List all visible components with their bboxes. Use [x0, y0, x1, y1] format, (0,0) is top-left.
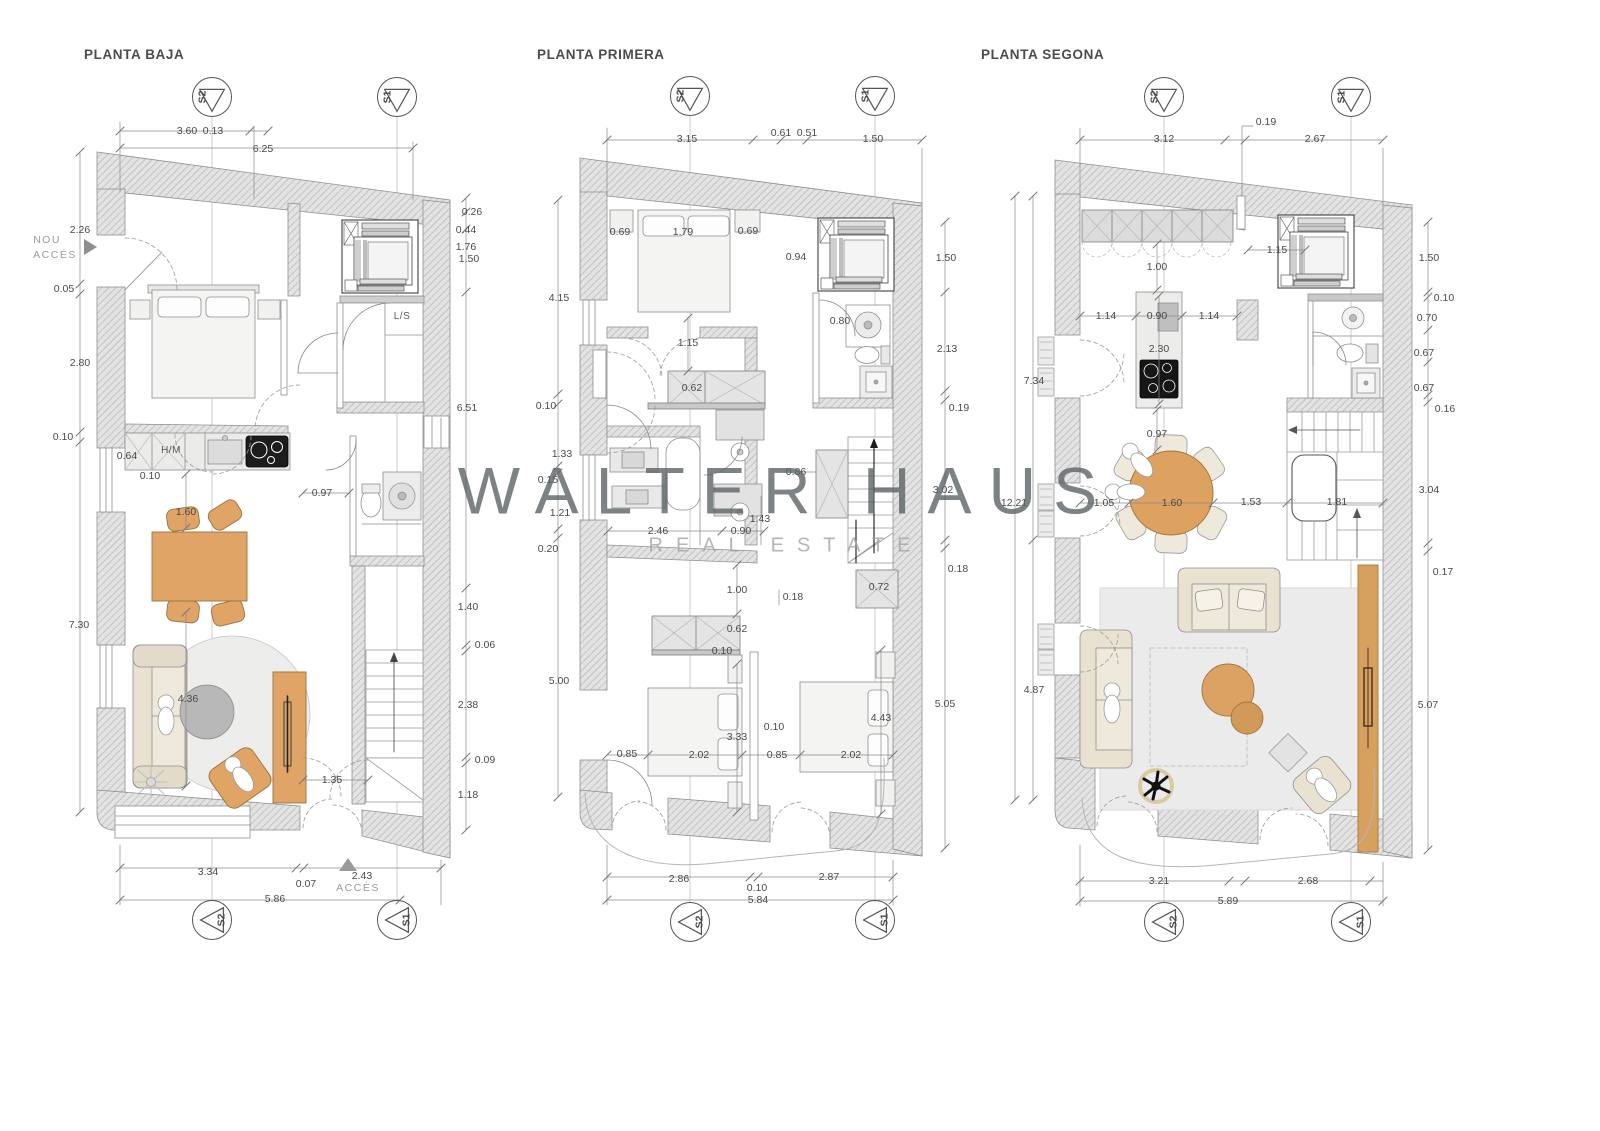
bathroom-fixtures	[1308, 294, 1383, 398]
dim-label: 7.34	[1024, 376, 1044, 387]
dim-label: 3.15	[677, 134, 697, 145]
dim-label: 0.10	[140, 471, 160, 482]
section-marker-label: S2	[674, 90, 686, 103]
dim-label: 2.02	[689, 750, 709, 761]
dim-label: 0.69	[610, 227, 630, 238]
dim-label: 0.05	[54, 284, 74, 295]
bed-icon	[648, 652, 895, 820]
dim-label: 1.18	[458, 790, 478, 801]
dim-label: 0.97	[312, 488, 332, 499]
section-marker-label: S1	[879, 914, 891, 927]
dim-label: 4.43	[871, 713, 891, 724]
dim-label: 0.62	[727, 624, 747, 635]
kitchen-counter	[125, 433, 290, 470]
dim-label: 5.05	[935, 699, 955, 710]
shutter-icons	[1038, 337, 1054, 675]
dim-label: 0.67	[1414, 383, 1434, 394]
dim-label: 4.15	[549, 293, 569, 304]
section-marker-label: S2	[1168, 916, 1180, 929]
dim-label: 0.18	[948, 564, 968, 575]
floorplan-sheet: PLANTA BAJA PLANTA PRIMERA PLANTA SEGONA…	[0, 0, 1600, 1131]
dim-label: 5.00	[549, 676, 569, 687]
dim-label: 2.80	[70, 358, 90, 369]
dim-label: 1.50	[1419, 253, 1439, 264]
dim-label: 0.80	[830, 316, 850, 327]
bed-icon	[130, 285, 287, 398]
dim-label: 5.89	[1218, 896, 1238, 907]
dim-label: 0.10	[764, 722, 784, 733]
dim-label: 0.61	[771, 128, 791, 139]
dim-label: 0.90	[731, 526, 751, 537]
dim-label: 3.04	[1419, 485, 1439, 496]
dim-label: ACCÉS	[33, 250, 77, 261]
dim-label: 0.17	[1433, 567, 1453, 578]
dim-label: 1.60	[1162, 498, 1182, 509]
section-marker-label: S2	[1148, 91, 1160, 104]
dim-label: 1.21	[550, 508, 570, 519]
stairs-icon	[1287, 412, 1383, 560]
dim-label: 2.67	[1305, 134, 1325, 145]
dim-label: 1.50	[459, 254, 479, 265]
elevator-icon	[342, 220, 418, 293]
elevator-icon	[1278, 215, 1354, 288]
plan-title-second-floor: PLANTA SEGONA	[981, 47, 1104, 62]
person-icon	[1104, 683, 1120, 723]
dim-label: 5.86	[265, 894, 285, 905]
dim-label: 0.19	[949, 403, 969, 414]
dim-label: 0.86	[786, 467, 806, 478]
dim-label: 0.09	[475, 755, 495, 766]
dim-label: 12.21	[1001, 498, 1027, 509]
dim-label: 0.10	[1434, 293, 1454, 304]
dim-label: 0.67	[1414, 348, 1434, 359]
dim-label: 3.21	[1149, 876, 1169, 887]
plan-ground-floor	[76, 117, 470, 905]
section-marker-s2: S2	[670, 902, 710, 942]
dim-label: 0.10	[536, 401, 556, 412]
dim-label: 7.30	[69, 620, 89, 631]
section-marker-s1: S1	[1331, 77, 1371, 117]
section-marker-label: S1	[1355, 916, 1367, 929]
closet-icon	[648, 371, 765, 409]
section-marker-s1: S1	[1331, 902, 1371, 942]
section-marker-label: S2	[196, 91, 208, 104]
dim-label: 0.94	[786, 252, 806, 263]
dim-label: 0.26	[462, 207, 482, 218]
dim-label: 2.46	[648, 526, 668, 537]
dim-label: 0.90	[1147, 311, 1167, 322]
dim-label: 1.50	[936, 253, 956, 264]
dim-label: 1.33	[552, 449, 572, 460]
dim-label: NOU	[33, 235, 61, 246]
dim-label: L/S	[394, 312, 411, 322]
dim-label: 0.16	[1435, 404, 1455, 415]
dim-label: 1.05	[1094, 498, 1114, 509]
dim-label: 0.10	[747, 883, 767, 894]
dim-label: 1.40	[458, 602, 478, 613]
section-marker-label: S2	[216, 914, 228, 927]
dim-label: 0.51	[797, 128, 817, 139]
dim-label: 0.70	[1417, 313, 1437, 324]
dim-label: 0.18	[783, 592, 803, 603]
sideboard-icon	[273, 672, 306, 803]
dim-label: 1.76	[456, 242, 476, 253]
dim-label: 0.97	[1147, 429, 1167, 440]
dim-label: H/M	[161, 446, 181, 456]
dim-label: 4.87	[1024, 685, 1044, 696]
dim-label: 1.50	[863, 134, 883, 145]
new-access-arrow-icon	[84, 239, 97, 255]
dim-label: 1.60	[176, 507, 196, 518]
dim-label: 2.43	[352, 871, 372, 882]
section-marker-s2: S2	[670, 76, 710, 116]
stairs-icon	[366, 650, 423, 802]
section-marker-label: S1	[381, 91, 393, 104]
section-marker-s2: S2	[1144, 77, 1184, 117]
dim-label: 6.25	[253, 144, 273, 155]
dim-label: 0.07	[296, 879, 316, 890]
dim-label: 3.60	[177, 126, 197, 137]
dim-label: 1.15	[1267, 245, 1287, 256]
dim-label: 0.13	[203, 126, 223, 137]
section-marker-label: S1	[1335, 91, 1347, 104]
wardrobe-icon	[1082, 210, 1233, 257]
dim-label: 2.87	[819, 872, 839, 883]
dim-label: 0.15	[538, 475, 558, 486]
section-marker-label: S2	[694, 916, 706, 929]
dim-label: 1.00	[1147, 262, 1167, 273]
dim-label: 2.13	[937, 344, 957, 355]
dim-label: 1.43	[750, 514, 770, 525]
section-marker-s2: S2	[192, 77, 232, 117]
sofa-icon	[1178, 568, 1280, 632]
section-marker-label: S1	[401, 914, 413, 927]
section-marker-s2: S2	[192, 900, 232, 940]
dim-label: 0.19	[1256, 117, 1276, 128]
section-marker-s1: S1	[377, 900, 417, 940]
wood-panel-icon	[1358, 565, 1378, 852]
dim-label: 0.64	[117, 451, 137, 462]
dim-label: 3.12	[1154, 134, 1174, 145]
person-icon	[158, 695, 174, 735]
elevator-icon	[818, 218, 894, 291]
dim-label: 6.51	[457, 403, 477, 414]
section-marker-label: S1	[859, 90, 871, 103]
plan-title-first-floor: PLANTA PRIMERA	[537, 47, 665, 62]
dim-label: 1.53	[1241, 497, 1261, 508]
section-marker-s1: S1	[855, 76, 895, 116]
dim-label: 0.10	[53, 432, 73, 443]
dim-label: 4.36	[178, 694, 198, 705]
dim-label: 0.10	[712, 646, 732, 657]
dim-label: 0.62	[682, 383, 702, 394]
dim-label: 3.34	[198, 867, 218, 878]
dim-label: 1.14	[1096, 311, 1116, 322]
dim-label: 0.85	[767, 750, 787, 761]
dim-label: 0.44	[456, 225, 476, 236]
dim-label: 2.26	[70, 225, 90, 236]
round-dining-table-icon	[1105, 434, 1229, 553]
dim-label: 2.68	[1298, 876, 1318, 887]
dim-label: 2.02	[841, 750, 861, 761]
coffee-table-icon	[1231, 702, 1263, 734]
dim-label: 0.72	[869, 582, 889, 593]
dim-label: 2.38	[458, 700, 478, 711]
dim-label: 0.69	[738, 226, 758, 237]
stairs-icon	[848, 437, 893, 563]
bathroom-fixtures	[361, 472, 421, 524]
section-marker-s2: S2	[1144, 902, 1184, 942]
dim-label: 3.33	[727, 732, 747, 743]
floorplan-drawing	[0, 0, 1600, 1131]
plan-title-ground-floor: PLANTA BAJA	[84, 47, 184, 62]
dim-label: 3.02	[933, 485, 953, 496]
dim-label: 0.85	[617, 749, 637, 760]
dim-label: 0.20	[538, 544, 558, 555]
dim-label: 1.81	[1327, 497, 1347, 508]
dim-label: 5.84	[748, 895, 768, 906]
dim-label: 5.07	[1418, 700, 1438, 711]
wall-slot	[1237, 196, 1245, 229]
plan-second-floor	[1011, 117, 1432, 906]
section-marker-s1: S1	[855, 900, 895, 940]
dim-label: 1.15	[678, 338, 698, 349]
dim-label: ACCÈS	[336, 883, 380, 894]
dining-table-icon	[152, 497, 247, 627]
dim-label: 1.35	[322, 775, 342, 786]
dim-label: 2.30	[1149, 344, 1169, 355]
dim-label: 1.79	[673, 227, 693, 238]
dim-label: 1.14	[1199, 311, 1219, 322]
dim-label: 1.00	[727, 585, 747, 596]
section-marker-s1: S1	[377, 77, 417, 117]
dim-label: 0.06	[475, 640, 495, 651]
laundry-room	[343, 303, 423, 402]
dim-label: 2.86	[669, 874, 689, 885]
